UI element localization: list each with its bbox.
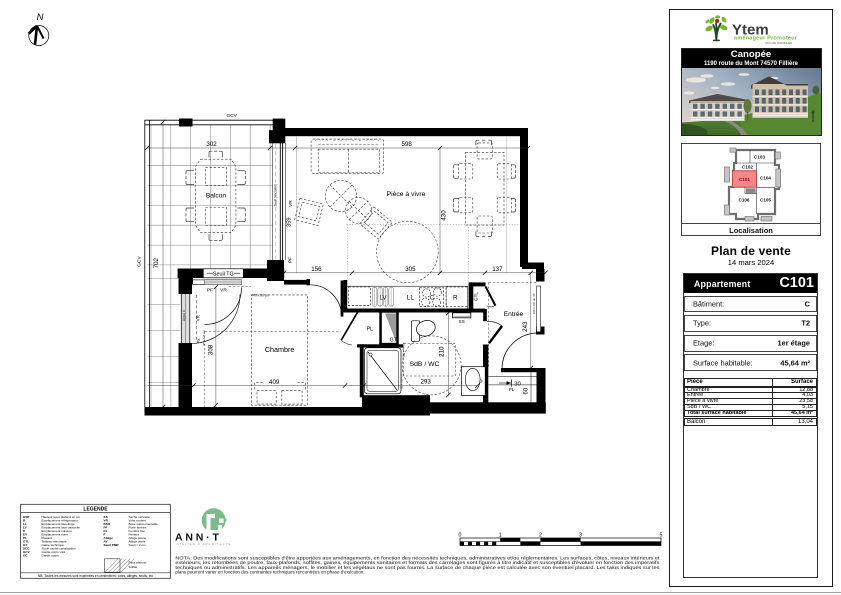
svg-text:aménageur Promoteur: aménageur Promoteur (734, 36, 798, 42)
svg-text:C102: C102 (742, 165, 753, 170)
svg-text:C105: C105 (760, 198, 771, 203)
svg-text:C106: C106 (739, 198, 750, 203)
svg-text:plans pourront varier en fonct: plans pourront varier en fonction des co… (175, 570, 364, 575)
svg-text:C101: C101 (739, 177, 750, 182)
svg-text:GROUPE IMMOBILIER: GROUPE IMMOBILIER (765, 41, 792, 45)
svg-text:C103: C103 (754, 155, 765, 160)
svg-text:C104: C104 (760, 176, 771, 181)
